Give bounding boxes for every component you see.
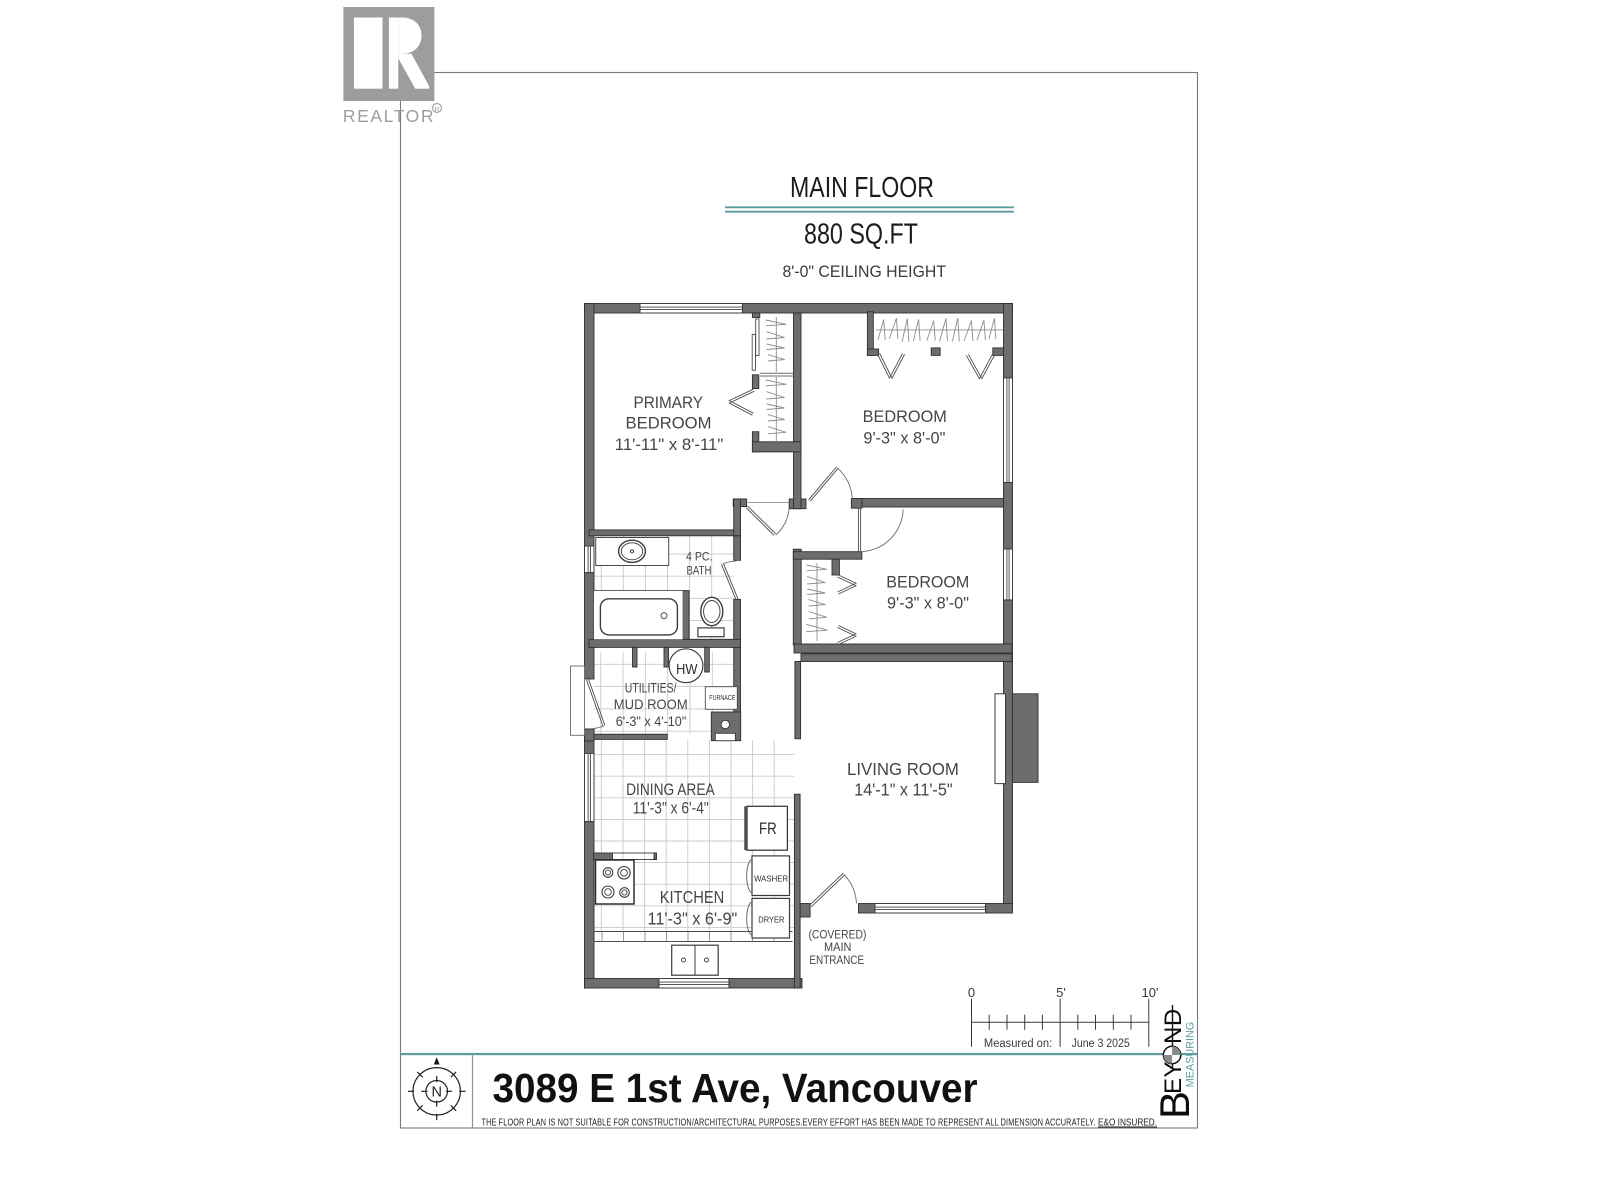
svg-text:BEDROOM: BEDROOM — [626, 414, 712, 433]
svg-text:E&O INSURED.: E&O INSURED. — [1098, 1118, 1157, 1129]
svg-text:MUD ROOM: MUD ROOM — [614, 696, 688, 712]
svg-text:9'-3" x 8'-0": 9'-3" x 8'-0" — [863, 429, 945, 448]
svg-text:REALTOR: REALTOR — [343, 106, 435, 126]
svg-text:FURNACE: FURNACE — [709, 695, 735, 702]
svg-text:MEASURING: MEASURING — [1185, 1022, 1197, 1087]
svg-text:DRYER: DRYER — [758, 914, 784, 924]
svg-text:9'-3" x 8'-0": 9'-3" x 8'-0" — [887, 594, 969, 613]
svg-text:UTILITIES/: UTILITIES/ — [625, 680, 677, 696]
svg-text:MAIN: MAIN — [824, 942, 851, 954]
svg-text:Measured on:: Measured on: — [984, 1038, 1052, 1050]
svg-text:FR: FR — [759, 820, 777, 838]
svg-text:ND: ND — [1160, 1008, 1187, 1044]
svg-text:DINING AREA: DINING AREA — [626, 780, 715, 799]
svg-text:B: B — [1151, 1091, 1198, 1119]
svg-text:0: 0 — [968, 985, 975, 1000]
svg-text:R: R — [435, 107, 440, 114]
svg-text:LIVING ROOM: LIVING ROOM — [847, 759, 959, 779]
svg-text:10': 10' — [1142, 985, 1159, 1000]
svg-text:6'-3" x 4'-10": 6'-3" x 4'-10" — [616, 713, 687, 729]
svg-text:3089 E 1st Ave, Vancouver: 3089 E 1st Ave, Vancouver — [493, 1065, 978, 1111]
svg-text:BEDROOM: BEDROOM — [863, 407, 947, 426]
svg-text:11'-3" x 6'-9": 11'-3" x 6'-9" — [648, 908, 738, 928]
svg-text:BATH: BATH — [687, 566, 712, 578]
svg-text:14'-1" x 11'-5": 14'-1" x 11'-5" — [854, 780, 952, 800]
svg-text:THE FLOOR PLAN IS NOT SUITAB: THE FLOOR PLAN IS NOT SUITABLE FOR CONST… — [482, 1118, 1096, 1129]
svg-text:WASHER: WASHER — [754, 873, 788, 883]
svg-text:PRIMARY: PRIMARY — [634, 393, 704, 412]
svg-text:11'-3" x 6'-4": 11'-3" x 6'-4" — [633, 798, 709, 817]
svg-text:EY: EY — [1160, 1061, 1187, 1094]
svg-text:11'-11" x 8'-11": 11'-11" x 8'-11" — [615, 435, 724, 454]
svg-text:MAIN FLOOR: MAIN FLOOR — [790, 172, 934, 204]
svg-text:KITCHEN: KITCHEN — [660, 887, 725, 907]
svg-text:HW: HW — [676, 662, 698, 678]
svg-text:4 PC.: 4 PC. — [686, 552, 713, 564]
svg-text:ENTRANCE: ENTRANCE — [809, 955, 864, 967]
svg-text:880 SQ.FT: 880 SQ.FT — [804, 219, 918, 251]
svg-text:(COVERED): (COVERED) — [809, 930, 867, 942]
svg-text:5': 5' — [1056, 985, 1066, 1000]
svg-text:N: N — [431, 1084, 441, 1100]
svg-text:BEDROOM: BEDROOM — [886, 572, 969, 591]
svg-text:June 3 2025: June 3 2025 — [1072, 1038, 1130, 1050]
svg-text:8'-0" CEILING HEIGHT: 8'-0" CEILING HEIGHT — [783, 262, 947, 281]
